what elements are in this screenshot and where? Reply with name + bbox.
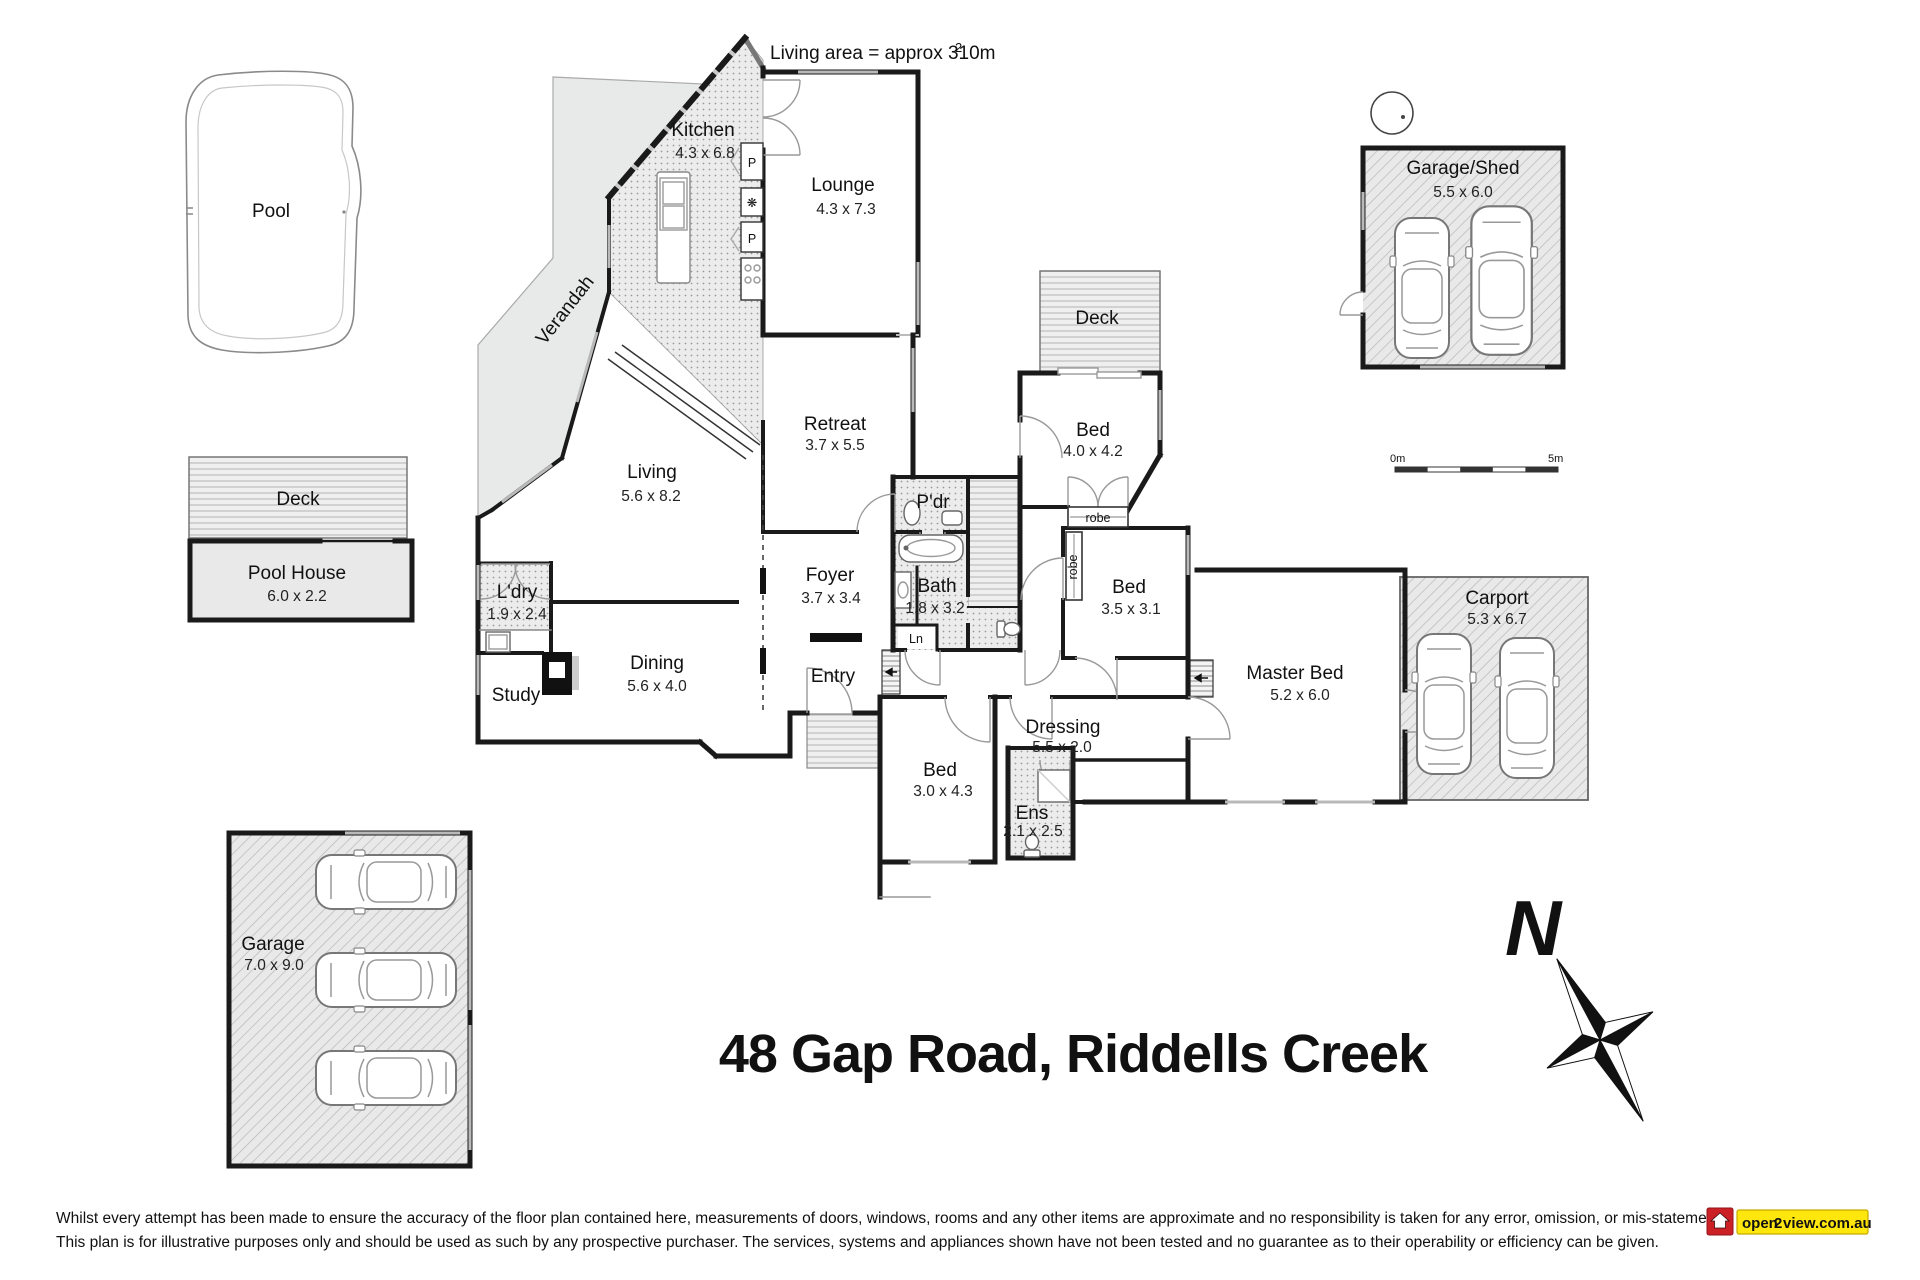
master-dim: 5.2 x 6.0 bbox=[1270, 687, 1330, 704]
ldry-label: L'dry bbox=[497, 582, 538, 603]
car-carport-2 bbox=[1495, 638, 1559, 778]
pdr-label: P'dr bbox=[916, 492, 950, 513]
pool-house-label: Pool House bbox=[248, 563, 346, 584]
bed1-dim: 4.0 x 4.2 bbox=[1063, 443, 1122, 460]
car-carport-1 bbox=[1412, 634, 1476, 774]
scale-bar: 0m 5m bbox=[1390, 453, 1563, 472]
pool-house-dim: 6.0 x 2.2 bbox=[267, 588, 326, 605]
bed2-label: Bed bbox=[1112, 577, 1146, 598]
car-garage-2 bbox=[316, 948, 456, 1012]
car-shed-1 bbox=[1390, 218, 1454, 358]
dining-label: Dining bbox=[630, 653, 684, 674]
garage-dim: 7.0 x 9.0 bbox=[244, 957, 304, 974]
floorplan-page: 0m 5m N Kitchen 4.3 x 6.8 Lounge 4.3 x 7… bbox=[0, 0, 1920, 1280]
foyer-dim: 3.7 x 3.4 bbox=[801, 590, 861, 607]
living-area-sup: 2 bbox=[955, 40, 962, 55]
entry-label: Entry bbox=[811, 666, 856, 687]
robe-h-label: robe bbox=[1085, 511, 1110, 525]
passage-floor bbox=[968, 477, 1020, 607]
entry-porch-floor bbox=[807, 714, 880, 768]
scale-end-label: 5m bbox=[1548, 453, 1563, 465]
car-shed-2 bbox=[1466, 206, 1538, 354]
robe-v-label: robe bbox=[1066, 554, 1080, 579]
linen-label: Ln bbox=[909, 632, 923, 646]
deck-left-label: Deck bbox=[276, 489, 320, 510]
car-garage-1 bbox=[316, 850, 456, 914]
kitchen-dim: 4.3 x 6.8 bbox=[675, 145, 734, 162]
bed3-dim: 3.0 x 4.3 bbox=[913, 783, 972, 800]
logo-text-3: view.com.au bbox=[1783, 1215, 1872, 1232]
carport-label: Carport bbox=[1465, 588, 1529, 609]
pool-label: Pool bbox=[252, 201, 290, 222]
pdr-toilet bbox=[942, 511, 962, 525]
compass: N bbox=[1504, 884, 1696, 1149]
garage-label: Garage bbox=[241, 934, 304, 955]
scale-start-label: 0m bbox=[1390, 453, 1405, 465]
pantry2-label: P bbox=[748, 232, 756, 246]
carport-dim: 5.3 x 6.7 bbox=[1467, 611, 1526, 628]
retreat-dim: 3.7 x 5.5 bbox=[805, 437, 864, 454]
kitchen-label: Kitchen bbox=[671, 120, 734, 141]
dressing-dim: 5.5 x 2.0 bbox=[1032, 739, 1092, 756]
disclaimer-line2: This plan is for illustrative purposes o… bbox=[56, 1234, 1659, 1251]
dressing-label: Dressing bbox=[1026, 717, 1101, 738]
lounge-label: Lounge bbox=[811, 175, 874, 196]
ldry-dim: 1.9 x 2.4 bbox=[487, 606, 547, 623]
ens-dim: 2.1 x 2.5 bbox=[1003, 823, 1062, 840]
study-label: Study bbox=[492, 685, 541, 706]
lounge-dim: 4.3 x 7.3 bbox=[816, 201, 875, 218]
garage-shed-label: Garage/Shed bbox=[1406, 158, 1519, 179]
living-dim: 5.6 x 8.2 bbox=[621, 488, 680, 505]
bath-dim: 1.8 x 3.2 bbox=[905, 600, 964, 617]
logo-text-1: open bbox=[1742, 1215, 1778, 1232]
foyer-wall-stub bbox=[810, 633, 862, 642]
fridge-icon: ❋ bbox=[747, 196, 758, 210]
open2view-logo: open 2 view.com.au bbox=[1707, 1208, 1872, 1235]
master-label: Master Bed bbox=[1246, 663, 1343, 684]
dining-dim: 5.6 x 4.0 bbox=[627, 678, 687, 695]
deck-top-label: Deck bbox=[1075, 308, 1119, 329]
bed2-dim: 3.5 x 3.1 bbox=[1101, 601, 1160, 618]
water-tank bbox=[1371, 92, 1413, 134]
disclaimer-line1: Whilst every attempt has been made to en… bbox=[56, 1210, 1724, 1227]
page-title: 48 Gap Road, Riddells Creek bbox=[719, 1024, 1429, 1084]
bed3-label: Bed bbox=[923, 760, 957, 781]
north-label: N bbox=[1505, 884, 1563, 972]
bed1-label: Bed bbox=[1076, 420, 1110, 441]
foyer-label: Foyer bbox=[806, 565, 855, 586]
ens-toilet bbox=[1024, 850, 1040, 857]
car-garage-3 bbox=[316, 1046, 456, 1110]
retreat-label: Retreat bbox=[804, 414, 867, 435]
ens-label: Ens bbox=[1016, 803, 1049, 824]
garage-shed-dim: 5.5 x 6.0 bbox=[1433, 184, 1493, 201]
pantry1-label: P bbox=[748, 156, 756, 170]
living-label: Living bbox=[627, 462, 677, 483]
floorplan-canvas: 0m 5m N Kitchen 4.3 x 6.8 Lounge 4.3 x 7… bbox=[0, 0, 1920, 1280]
logo-text-2: 2 bbox=[1774, 1215, 1782, 1232]
bath-label: Bath bbox=[917, 576, 956, 597]
